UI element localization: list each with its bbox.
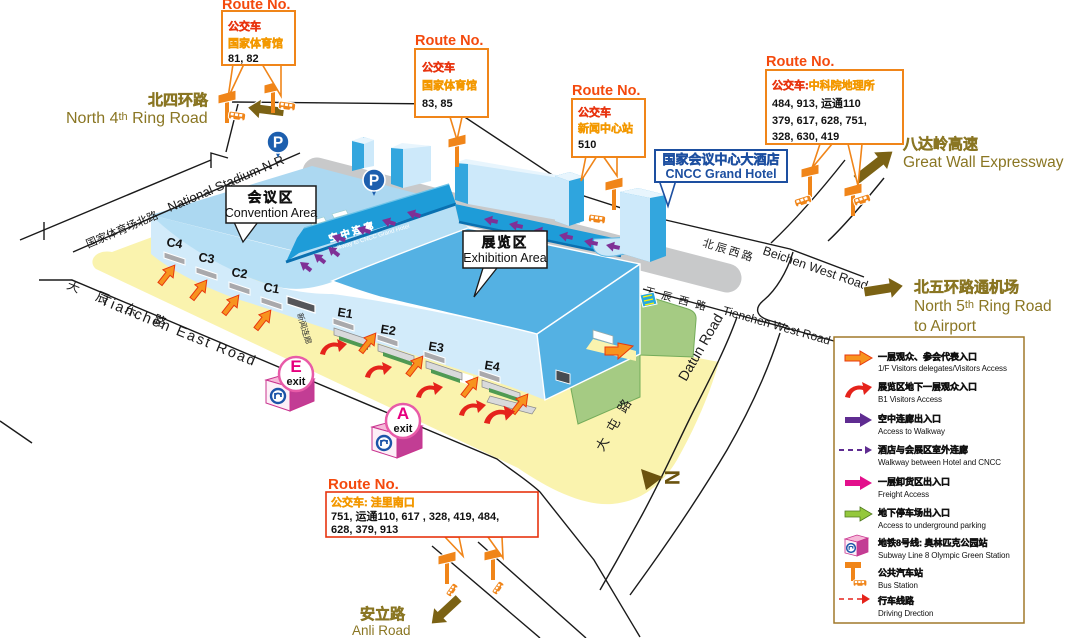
svg-text:一层卸货区出入口: 一层卸货区出入口 — [878, 476, 950, 487]
svg-text:Route No.: Route No. — [766, 54, 834, 70]
svg-text:exit: exit — [394, 423, 413, 435]
svg-text:C2: C2 — [231, 265, 249, 281]
svg-text:地铁8号线: 奥林匹克公园站: 地铁8号线: 奥林匹克公园站 — [878, 537, 988, 548]
svg-text:Exhibition Area: Exhibition Area — [463, 251, 546, 265]
svg-text:公交车: 公交车 — [578, 105, 611, 119]
svg-text:国家会议中心大酒店: 国家会议中心大酒店 — [662, 152, 779, 167]
svg-text:C3: C3 — [198, 250, 216, 266]
svg-text:公交车: 公交车 — [422, 60, 455, 74]
svg-text:Freight Access: Freight Access — [878, 490, 929, 499]
svg-text:北五环路通机场: 北五环路通机场 — [914, 278, 1019, 296]
svg-text:北四环路: 北四环路 — [148, 91, 209, 109]
svg-text:安立路: 安立路 — [360, 605, 406, 623]
svg-text:to Airport: to Airport — [914, 318, 977, 335]
svg-text:510: 510 — [578, 139, 596, 151]
svg-text:Driving Drection: Driving Drection — [878, 609, 933, 618]
svg-text:Access to underground parking: Access to underground parking — [878, 521, 986, 530]
svg-text:1/F Visitors delegates/Visito: 1/F Visitors delegates/Visitors Access — [878, 364, 1007, 373]
svg-text:628, 379, 913: 628, 379, 913 — [331, 524, 398, 536]
svg-text:379, 617, 628, 751,: 379, 617, 628, 751, — [772, 115, 867, 127]
svg-text:Walkway between Hotel and CNCC: Walkway between Hotel and CNCC — [878, 458, 1001, 467]
svg-text:E4: E4 — [484, 358, 501, 374]
svg-text:83, 85: 83, 85 — [422, 98, 453, 110]
svg-text:Route No.: Route No. — [222, 0, 290, 13]
svg-text:A: A — [397, 404, 409, 423]
svg-text:会议区: 会议区 — [248, 189, 295, 205]
svg-text:E: E — [290, 357, 301, 376]
svg-text:81, 82: 81, 82 — [228, 53, 259, 65]
svg-text:North 4th Ring Road: North 4th Ring Road — [66, 110, 208, 127]
svg-text:C1: C1 — [263, 280, 281, 296]
svg-text:一层观众、参会代表入口: 一层观众、参会代表入口 — [878, 351, 977, 362]
svg-text:E1: E1 — [337, 305, 354, 321]
svg-text:公交车: 洼里南口: 公交车: 洼里南口 — [331, 495, 415, 509]
svg-text:展览区: 展览区 — [482, 234, 529, 250]
svg-text:国家体育馆: 国家体育馆 — [228, 36, 283, 50]
svg-text:展览区地下一层观众入口: 展览区地下一层观众入口 — [878, 381, 977, 392]
svg-text:空中连廊出入口: 空中连廊出入口 — [878, 413, 941, 424]
svg-text:Access to Walkway: Access to Walkway — [878, 427, 945, 436]
svg-text:新闻中心站: 新闻中心站 — [578, 121, 633, 135]
svg-text:公共汽车站: 公共汽车站 — [878, 567, 923, 578]
svg-text:North 5th Ring Road: North 5th Ring Road — [914, 298, 1052, 315]
svg-text:行车线路: 行车线路 — [877, 595, 915, 606]
svg-text:Convention Area: Convention Area — [225, 206, 317, 220]
svg-text:国家体育馆: 国家体育馆 — [422, 78, 477, 92]
svg-text:Bus Station: Bus Station — [878, 581, 918, 590]
svg-text:八达岭高速: 八达岭高速 — [902, 135, 978, 153]
svg-text:CNCC Grand Hotel: CNCC Grand Hotel — [665, 167, 776, 181]
svg-text:exit: exit — [287, 376, 306, 388]
svg-text:328, 630, 419: 328, 630, 419 — [772, 131, 839, 143]
svg-text:C4: C4 — [166, 235, 184, 251]
svg-text:地下停车场出入口: 地下停车场出入口 — [878, 507, 950, 518]
svg-text:Route No.: Route No. — [415, 33, 483, 49]
svg-text:N: N — [660, 470, 683, 485]
svg-text:Subway Line 8 Olympic Green S: Subway Line 8 Olympic Green Station — [878, 551, 1010, 560]
svg-text:Route No.: Route No. — [328, 476, 399, 493]
svg-text:Route No.: Route No. — [572, 83, 640, 99]
svg-text:E3: E3 — [428, 339, 445, 355]
svg-text:酒店与会展区室外连廊: 酒店与会展区室外连廊 — [878, 444, 968, 455]
svg-text:484, 913, 运通110: 484, 913, 运通110 — [772, 97, 861, 110]
svg-text:公交车:中科院地理所: 公交车:中科院地理所 — [772, 78, 875, 92]
svg-text:B1 Visitors Access: B1 Visitors Access — [878, 395, 942, 404]
svg-text:751, 运通110, 617 , 328, 419, 48: 751, 运通110, 617 , 328, 419, 484, — [331, 510, 499, 523]
svg-text:公交车: 公交车 — [228, 19, 261, 33]
svg-text:E2: E2 — [380, 322, 397, 338]
svg-text:Great Wall Expressway: Great Wall Expressway — [903, 154, 1064, 171]
svg-text:Anli Road: Anli Road — [352, 623, 411, 638]
